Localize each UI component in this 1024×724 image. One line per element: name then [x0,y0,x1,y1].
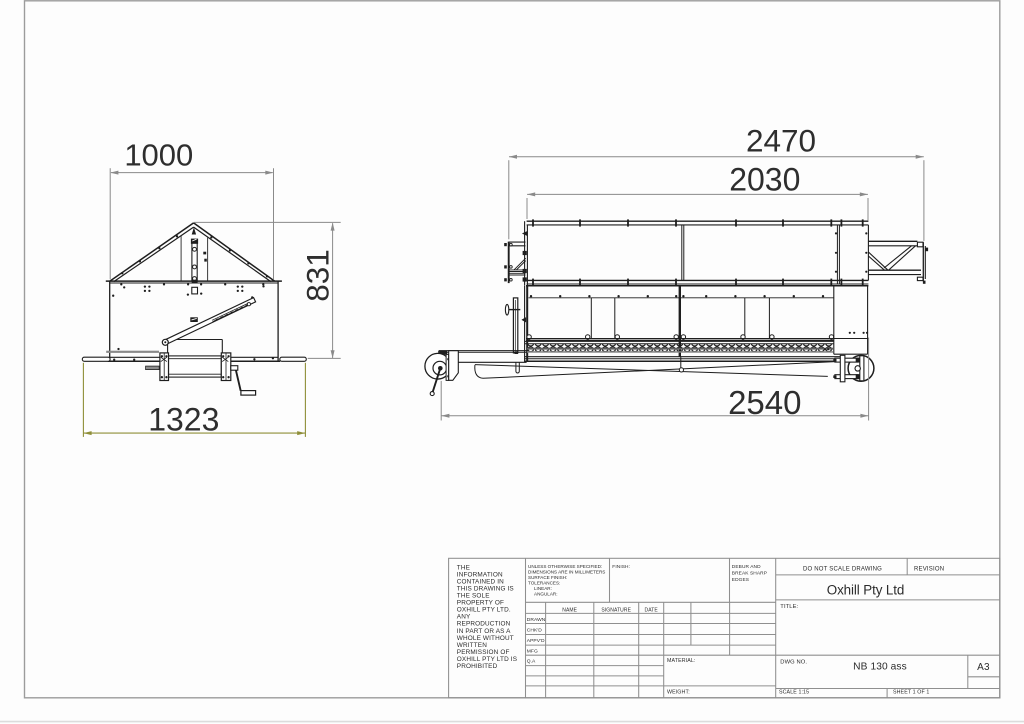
svg-text:REPRODUCTION: REPRODUCTION [457,621,511,628]
svg-text:DO NOT SCALE DRAWING: DO NOT SCALE DRAWING [803,567,882,573]
svg-text:INFORMATION: INFORMATION [457,571,503,578]
svg-text:SURFACE FINISH:: SURFACE FINISH: [528,575,567,580]
svg-text:BREAK SHARP: BREAK SHARP [732,571,767,577]
svg-text:APPV'D: APPV'D [527,638,545,644]
svg-text:UNLESS OTHERWISE SPECIFIED:: UNLESS OTHERWISE SPECIFIED: [528,564,602,569]
svg-text:ANY: ANY [457,614,471,621]
svg-text:TOLERANCES:: TOLERANCES: [528,581,560,586]
svg-text:NB 130 ass: NB 130 ass [853,662,907,673]
svg-text:TITLE:: TITLE: [780,604,798,610]
svg-text:MFG: MFG [527,648,538,654]
svg-text:2470: 2470 [746,122,816,158]
svg-text:DIMENSIONS ARE IN MILLIMETERS: DIMENSIONS ARE IN MILLIMETERS [528,570,605,575]
svg-text:831: 831 [300,249,336,302]
svg-text:THIS DRAWING IS: THIS DRAWING IS [457,585,514,592]
svg-text:SHEET 1 OF 1: SHEET 1 OF 1 [893,690,929,696]
svg-text:1323: 1323 [148,402,219,438]
svg-text:SCALE 1:15: SCALE 1:15 [779,690,809,696]
svg-text:DWG NO.: DWG NO. [780,660,807,666]
svg-text:CHK'D: CHK'D [527,627,542,633]
svg-text:CONTAINED IN: CONTAINED IN [457,578,504,585]
svg-text:WRITTEN: WRITTEN [457,642,487,649]
svg-text:ANGULAR:: ANGULAR: [534,592,558,597]
svg-text:DATE: DATE [645,607,659,613]
svg-text:A3: A3 [977,662,990,673]
svg-text:THE: THE [457,564,470,571]
svg-text:PERMISSION OF: PERMISSION OF [457,649,510,656]
svg-text:FINISH:: FINISH: [612,564,630,570]
svg-text:2030: 2030 [729,162,800,198]
svg-text:2540: 2540 [728,384,801,421]
svg-text:Q.A: Q.A [527,659,536,665]
svg-text:DEBUR AND: DEBUR AND [732,564,761,570]
svg-text:DRAWN: DRAWN [527,617,546,623]
svg-text:WHOLE WITHOUT: WHOLE WITHOUT [457,635,514,642]
svg-text:Oxhill Pty Ltd: Oxhill Pty Ltd [827,582,905,597]
svg-text:PROPERTY OF: PROPERTY OF [457,600,504,607]
svg-text:LINEAR:: LINEAR: [534,586,552,591]
svg-text:OXHILL PTY LTD.: OXHILL PTY LTD. [457,607,511,614]
svg-text:THE SOLE: THE SOLE [457,593,490,600]
svg-text:PROHIBITED: PROHIBITED [457,663,498,670]
svg-text:REVISION: REVISION [914,567,944,573]
svg-text:NAME: NAME [562,607,577,613]
svg-text:1000: 1000 [124,137,193,172]
svg-text:IN PART OR AS A: IN PART OR AS A [457,628,511,635]
svg-text:EDGES: EDGES [732,577,749,583]
svg-text:MATERIAL:: MATERIAL: [667,658,695,664]
svg-text:OXHILL PTY LTD IS: OXHILL PTY LTD IS [457,656,517,663]
svg-text:WEIGHT:: WEIGHT: [667,690,690,696]
svg-text:SIGNATURE: SIGNATURE [601,607,631,613]
